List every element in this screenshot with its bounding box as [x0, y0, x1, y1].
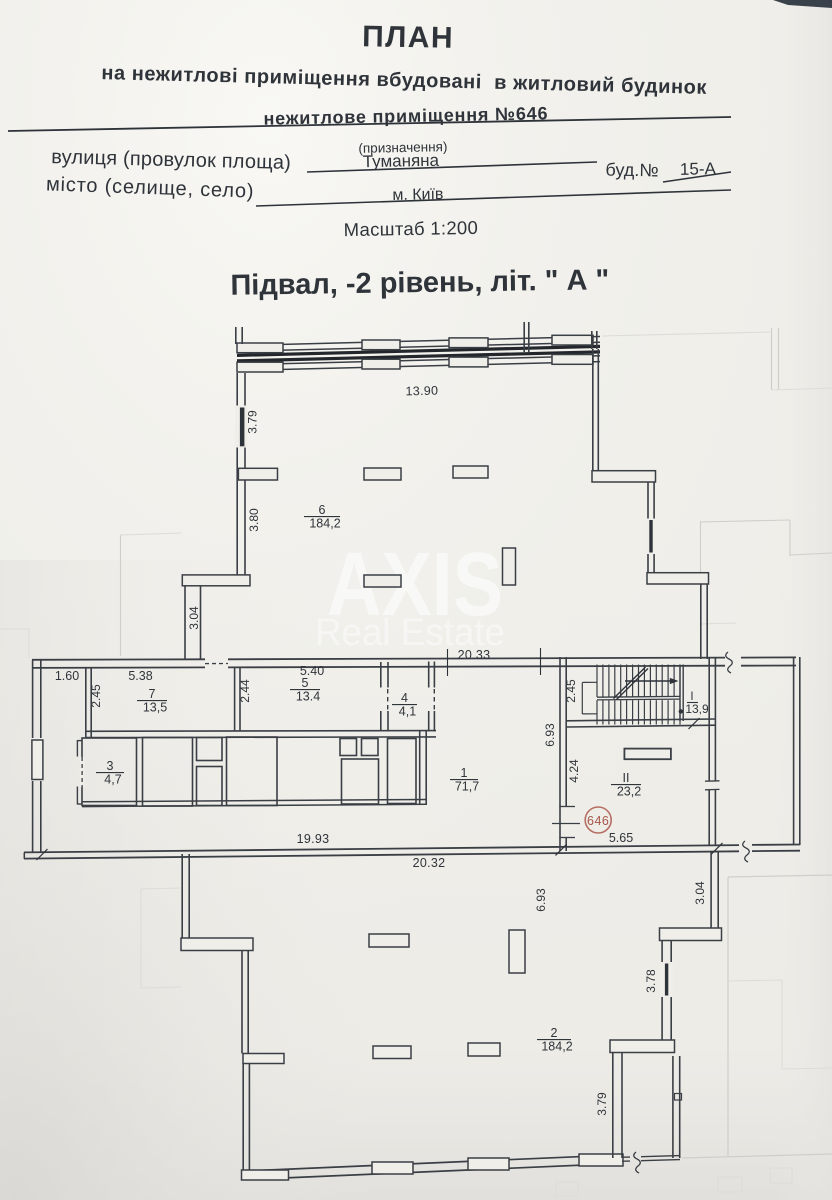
- svg-text:7: 7: [149, 687, 156, 701]
- svg-text:3.79: 3.79: [246, 410, 260, 434]
- svg-text:буд.№: буд.№: [605, 160, 658, 181]
- svg-text:4: 4: [401, 691, 408, 705]
- svg-text:3.78: 3.78: [644, 969, 658, 993]
- svg-text:13,9: 13,9: [685, 702, 709, 716]
- svg-text:19.93: 19.93: [297, 832, 330, 846]
- svg-text:3.04: 3.04: [693, 881, 707, 905]
- svg-text:71,7: 71,7: [455, 780, 479, 794]
- svg-text:3.04: 3.04: [187, 606, 201, 630]
- svg-text:5.40: 5.40: [300, 664, 324, 678]
- svg-text:5.38: 5.38: [128, 669, 152, 683]
- svg-text:2.44: 2.44: [238, 679, 252, 703]
- svg-text:23,2: 23,2: [617, 785, 641, 799]
- svg-text:15-А: 15-А: [680, 159, 717, 179]
- svg-text:6: 6: [319, 503, 326, 517]
- svg-text:20.33: 20.33: [458, 648, 491, 662]
- svg-text:4,7: 4,7: [104, 773, 121, 787]
- svg-text:13.4: 13.4: [296, 690, 320, 704]
- svg-text:13.90: 13.90: [405, 384, 438, 399]
- svg-text:6.93: 6.93: [543, 723, 557, 747]
- svg-text:4,1: 4,1: [399, 705, 416, 719]
- svg-text:184,2: 184,2: [541, 1040, 572, 1054]
- svg-text:184,2: 184,2: [309, 517, 340, 531]
- svg-text:1: 1: [461, 766, 468, 780]
- svg-text:2.45: 2.45: [89, 684, 103, 708]
- svg-text:3: 3: [107, 759, 114, 773]
- svg-text:II: II: [623, 771, 630, 785]
- svg-text:Туманяна: Туманяна: [363, 151, 440, 171]
- svg-text:13,5: 13,5: [143, 701, 167, 715]
- svg-text:Підвал, -2 рівень, літ. " А ": Підвал, -2 рівень, літ. " А ": [230, 264, 609, 302]
- svg-text:2.45: 2.45: [564, 679, 578, 703]
- svg-text:646: 646: [587, 814, 609, 828]
- svg-text:1.60: 1.60: [55, 669, 79, 683]
- svg-text:6.93: 6.93: [534, 888, 548, 912]
- svg-text:4.24: 4.24: [567, 759, 581, 783]
- svg-text:3.79: 3.79: [595, 1092, 609, 1116]
- svg-text:5.65: 5.65: [609, 831, 633, 845]
- svg-text:Масштаб 1:200: Масштаб 1:200: [343, 217, 478, 240]
- svg-text:20.32: 20.32: [413, 856, 446, 870]
- svg-text:м. Київ: м. Київ: [392, 186, 443, 204]
- svg-text:ПЛАН: ПЛАН: [362, 20, 455, 55]
- svg-text:5: 5: [302, 676, 309, 690]
- svg-text:3.80: 3.80: [247, 508, 261, 532]
- svg-text:2: 2: [551, 1026, 558, 1040]
